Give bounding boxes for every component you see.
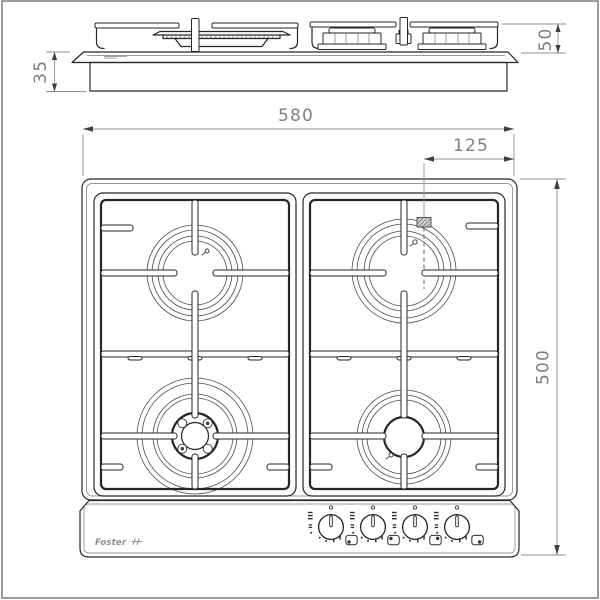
burner-position-icon-burner-front-left	[346, 535, 357, 544]
scale-tick-dot	[451, 540, 453, 542]
flame-low-bar	[351, 527, 354, 528]
flame-high-bar	[392, 512, 397, 513]
flame-low-icon	[435, 524, 438, 528]
flame-high-icon	[350, 512, 355, 520]
grate-frame	[303, 193, 505, 496]
scale-tick	[423, 536, 425, 540]
flame-high-bar	[350, 515, 355, 516]
scale-tick	[465, 536, 467, 540]
side-front-logo	[104, 56, 127, 58]
flame-high-icon	[434, 512, 439, 520]
flame-low-icon	[351, 524, 354, 528]
scale-tick	[381, 536, 383, 540]
hob-technical-drawing: 50 35 Foster	[0, 0, 600, 600]
dim-side-recess-label: 35	[31, 60, 51, 84]
grate-rail-foot	[337, 357, 351, 361]
flame-low-bar	[309, 524, 312, 525]
burner-position-box	[346, 535, 357, 544]
grate-rail-foot	[457, 357, 471, 361]
dim-top-width: 580	[83, 106, 514, 176]
gas-inlet-hatch-icon	[417, 218, 431, 290]
knob-pointer	[330, 516, 333, 527]
min-tick-dot	[310, 532, 312, 534]
burner-bolt	[203, 444, 212, 453]
flame-high-bar	[434, 512, 439, 513]
min-tick-dot	[394, 532, 396, 534]
knob-pointer	[372, 516, 375, 527]
flame-high-bar	[308, 518, 313, 519]
flame-high-icon	[308, 512, 313, 520]
foster-logo: Foster	[95, 538, 142, 548]
side-burner-cap	[418, 28, 486, 50]
flame-low-bar	[435, 524, 438, 525]
burner-position-dot	[389, 537, 392, 540]
grate-finger	[101, 270, 177, 276]
burner-bolt	[178, 419, 187, 428]
dim-top-right-offset: 125	[424, 136, 514, 218]
hob-surface-inner-line	[87, 184, 513, 497]
ignition-dot-icon	[455, 506, 458, 509]
hob-surface-outline	[82, 179, 517, 500]
dim-top-depth-label: 500	[534, 349, 554, 385]
grate-stub	[310, 464, 332, 470]
grate-finger	[310, 433, 386, 439]
burner-position-icon-burner-front-right	[472, 535, 483, 544]
grate-finger	[101, 433, 177, 439]
flame-high-bar	[434, 515, 439, 516]
foster-logo-text: Foster	[95, 538, 127, 548]
flame-high-bar	[350, 518, 355, 519]
grate-stub	[101, 225, 133, 231]
flame-low-icon	[393, 524, 396, 528]
scale-tick-dot	[445, 537, 447, 539]
side-hob-body	[90, 63, 507, 92]
burner-position-icon-burner-rear-right	[430, 535, 441, 544]
grate-frame	[94, 193, 296, 496]
flame-low-bar	[393, 524, 396, 525]
flame-high-bar	[434, 518, 439, 519]
ignition-dot-icon	[371, 506, 374, 509]
flame-high-bar	[392, 515, 397, 516]
scale-tick-dot	[325, 540, 327, 542]
burner-position-dot	[436, 537, 439, 540]
dim-top-depth: 500	[520, 179, 566, 555]
side-right-burners-profile	[310, 18, 498, 50]
scale-tick	[375, 538, 377, 542]
side-hob-plate	[72, 52, 518, 63]
ignition-electrode-icon	[205, 249, 209, 253]
flame-low-bar	[435, 527, 438, 528]
knob-pointer	[456, 516, 459, 527]
grate-finger	[422, 433, 498, 439]
ignition-electrode-icon	[389, 453, 393, 457]
scale-tick-dot	[319, 537, 321, 539]
grate-stub	[476, 464, 498, 470]
grate-finger	[401, 454, 407, 489]
flame-high-bar	[392, 518, 397, 519]
burner-position-box	[388, 535, 399, 544]
control-knobs	[308, 506, 483, 545]
dim-side-height-label: 50	[536, 27, 556, 51]
grate-rail-foot	[128, 357, 142, 361]
scale-tick-dot	[403, 537, 405, 539]
top-view: Foster 580 125	[80, 106, 566, 557]
grate-finger	[213, 270, 289, 276]
flame-high-bar	[350, 512, 355, 513]
flame-high-icon	[392, 512, 397, 520]
side-burner-cap	[318, 28, 386, 50]
ignition-electrode-lead	[410, 244, 414, 247]
scale-tick-dot	[361, 537, 363, 539]
grate-finger	[192, 291, 198, 418]
ignition-electrode-lead	[202, 253, 206, 256]
grate-stub	[466, 223, 498, 229]
burner-position-box	[430, 535, 441, 544]
flame-low-bar	[351, 524, 354, 525]
burner-position-box	[472, 535, 483, 544]
ignition-electrode-icon	[413, 240, 417, 244]
flame-low-icon	[309, 524, 312, 528]
burner-bolt-dot	[181, 447, 185, 451]
flame-low-bar	[393, 527, 396, 528]
grate-rail-foot	[248, 357, 262, 361]
grate-finger	[213, 433, 289, 439]
dim-top-right-offset-label: 125	[453, 136, 489, 156]
burner-bolt-dot	[206, 422, 210, 426]
scale-tick-dot	[409, 540, 411, 542]
min-tick-dot	[352, 532, 354, 534]
grate-stub	[101, 464, 123, 470]
grate-finger	[192, 454, 198, 489]
dim-side-height: 50	[502, 24, 566, 53]
burner-position-icon-burner-rear-left	[388, 535, 399, 544]
grate-stub	[267, 464, 289, 470]
grate-finger	[192, 200, 198, 255]
grate-finger	[401, 200, 407, 255]
side-view: 50 35	[31, 18, 566, 92]
ignition-electrode-lead	[386, 457, 390, 460]
flame-low-bar	[309, 527, 312, 528]
scale-tick-dot	[367, 540, 369, 542]
scale-tick	[333, 538, 335, 542]
side-left-burner-profile	[95, 19, 298, 52]
control-knob-group	[308, 506, 357, 545]
grate-finger	[401, 291, 407, 418]
scale-tick	[459, 538, 461, 542]
ignition-dot-icon	[413, 506, 416, 509]
knob-pointer	[414, 516, 417, 527]
scale-tick	[417, 538, 419, 542]
dim-top-width-label: 580	[278, 106, 314, 126]
grate-finger	[310, 270, 386, 276]
scale-tick	[339, 536, 341, 540]
burner-position-dot	[347, 540, 350, 543]
burner-position-dot	[478, 540, 481, 543]
foster-logo-mark	[132, 539, 143, 545]
grate-finger	[422, 270, 498, 276]
min-tick-dot	[436, 532, 438, 534]
flame-high-bar	[308, 512, 313, 513]
ignition-dot-icon	[329, 506, 332, 509]
flame-high-bar	[308, 515, 313, 516]
burner-cap	[384, 417, 424, 457]
